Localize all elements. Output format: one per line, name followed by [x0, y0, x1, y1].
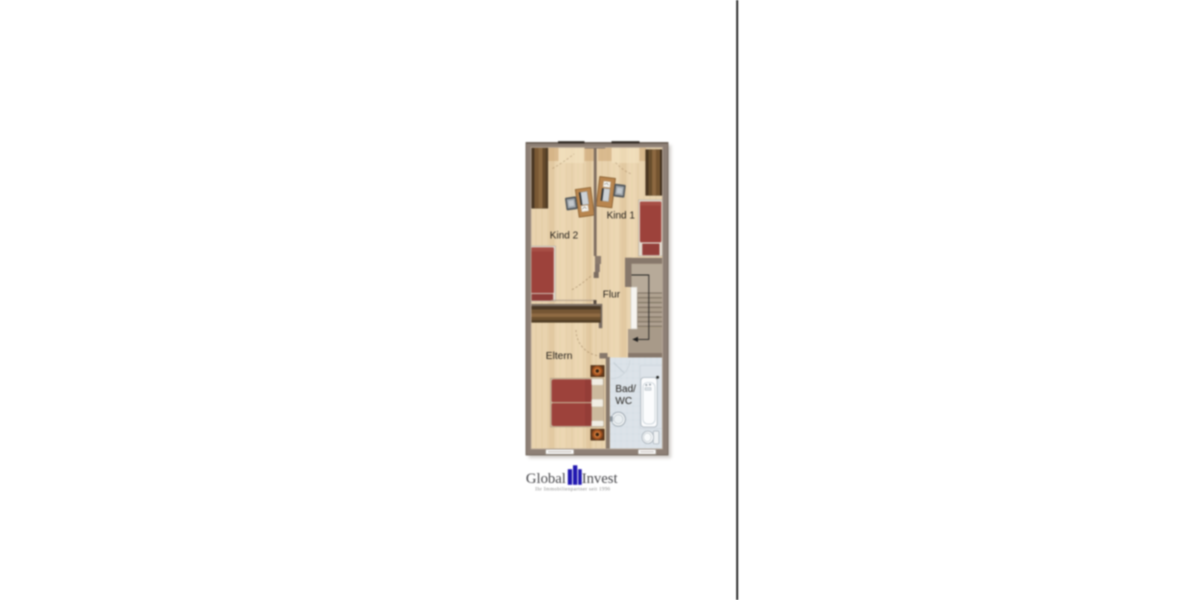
- svg-text:Kind 2: Kind 2: [550, 230, 579, 241]
- svg-text:Bad/: Bad/: [615, 384, 636, 395]
- svg-text:Kind 1: Kind 1: [607, 211, 636, 222]
- svg-text:Global: Global: [526, 471, 566, 487]
- svg-text:Eltern: Eltern: [546, 351, 573, 362]
- svg-text:Invest: Invest: [582, 471, 618, 487]
- svg-text:WC: WC: [615, 396, 632, 407]
- svg-text:Ihr Immobilienpartner seit 199: Ihr Immobilienpartner seit 1996: [535, 487, 610, 493]
- svg-text:Flur: Flur: [603, 289, 621, 300]
